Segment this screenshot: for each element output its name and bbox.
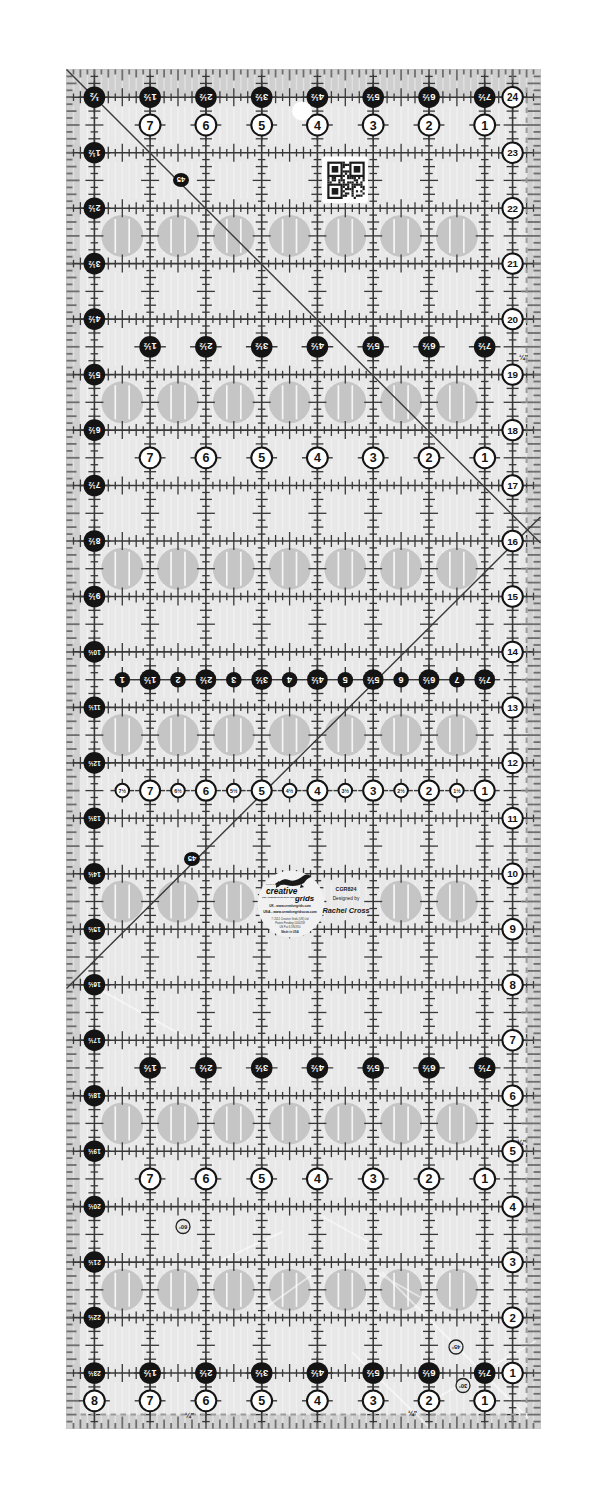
svg-text:4: 4 <box>314 119 321 133</box>
svg-text:6½: 6½ <box>422 675 435 685</box>
svg-text:2½: 2½ <box>88 203 100 213</box>
svg-text:7: 7 <box>147 1172 154 1186</box>
svg-text:4: 4 <box>314 1394 321 1408</box>
svg-text:7: 7 <box>147 119 154 133</box>
svg-text:8: 8 <box>509 979 516 991</box>
svg-text:2: 2 <box>175 675 180 685</box>
svg-text:2: 2 <box>426 451 433 465</box>
svg-text:6: 6 <box>203 785 209 797</box>
svg-text:2: 2 <box>426 1172 433 1186</box>
svg-text:45: 45 <box>177 175 185 184</box>
svg-text:4: 4 <box>509 1201 516 1213</box>
svg-text:18½: 18½ <box>88 1092 101 1099</box>
svg-text:5½: 5½ <box>367 1063 380 1074</box>
svg-text:23½: 23½ <box>87 1370 100 1377</box>
svg-text:45°: 45° <box>452 1344 460 1350</box>
svg-text:11: 11 <box>507 813 518 824</box>
svg-text:24: 24 <box>507 92 519 103</box>
svg-text:7: 7 <box>454 675 459 685</box>
svg-text:2½: 2½ <box>397 788 405 794</box>
svg-text:4½: 4½ <box>311 675 324 685</box>
svg-text:4: 4 <box>314 451 321 465</box>
svg-text:6½: 6½ <box>422 92 435 103</box>
svg-text:12½: 12½ <box>88 760 101 767</box>
svg-text:9: 9 <box>509 923 515 935</box>
svg-text:7½: 7½ <box>478 92 491 103</box>
svg-text:19½: 19½ <box>88 1148 101 1155</box>
svg-text:6: 6 <box>399 675 404 685</box>
svg-text:4½: 4½ <box>286 788 294 794</box>
svg-text:7: 7 <box>147 1394 154 1408</box>
svg-text:2½: 2½ <box>199 1368 212 1379</box>
svg-text:Rachel Cross: Rachel Cross <box>322 906 369 915</box>
svg-text:11½: 11½ <box>88 704 101 711</box>
svg-text:16: 16 <box>507 536 518 547</box>
svg-text:6½: 6½ <box>88 425 100 435</box>
svg-text:5½: 5½ <box>88 370 100 380</box>
svg-text:8½: 8½ <box>88 536 100 546</box>
svg-text:7½: 7½ <box>478 341 491 352</box>
svg-text:21: 21 <box>507 258 518 269</box>
svg-text:5½: 5½ <box>367 341 380 352</box>
svg-text:The Original NON-SLIP ruler: The Original NON-SLIP ruler <box>262 896 295 899</box>
svg-text:15: 15 <box>507 591 518 602</box>
svg-text:5: 5 <box>258 1394 265 1408</box>
svg-text:1: 1 <box>120 675 125 685</box>
svg-text:4½: 4½ <box>88 314 100 324</box>
svg-text:7½: 7½ <box>478 1368 491 1379</box>
svg-text:19: 19 <box>507 369 518 380</box>
svg-text:3: 3 <box>370 451 377 465</box>
svg-text:22½: 22½ <box>88 1314 101 1321</box>
svg-text:¼": ¼" <box>517 1139 526 1146</box>
svg-text:5: 5 <box>509 1145 516 1157</box>
svg-text:2: 2 <box>426 1394 433 1408</box>
svg-text:7: 7 <box>509 1034 515 1046</box>
svg-text:3: 3 <box>370 119 377 133</box>
svg-text:17: 17 <box>507 480 518 491</box>
svg-text:1: 1 <box>481 119 488 133</box>
svg-text:Patent Pending 1000258: Patent Pending 1000258 <box>275 921 305 925</box>
svg-text:3: 3 <box>370 785 376 797</box>
svg-text:45: 45 <box>188 854 196 863</box>
svg-text:7: 7 <box>147 451 154 465</box>
svg-text:6: 6 <box>202 1172 209 1186</box>
svg-text:3½: 3½ <box>255 1368 268 1379</box>
svg-text:9½: 9½ <box>88 591 100 601</box>
svg-text:2½: 2½ <box>199 1063 212 1074</box>
svg-text:5½: 5½ <box>367 92 380 103</box>
svg-text:1½: 1½ <box>88 148 100 158</box>
svg-text:¼": ¼" <box>519 354 528 361</box>
svg-text:¼": ¼" <box>185 1412 194 1419</box>
svg-text:Designed by: Designed by <box>333 896 360 901</box>
svg-text:CGR824: CGR824 <box>336 886 357 892</box>
svg-text:4½: 4½ <box>311 1063 324 1074</box>
svg-text:13½: 13½ <box>88 815 101 822</box>
svg-text:grids: grids <box>294 894 315 903</box>
svg-text:2: 2 <box>509 1312 515 1324</box>
svg-text:6½: 6½ <box>174 788 182 794</box>
svg-text:6: 6 <box>202 1394 209 1408</box>
svg-text:1½: 1½ <box>453 788 461 794</box>
svg-text:5: 5 <box>258 1172 265 1186</box>
svg-text:20½: 20½ <box>88 1203 101 1210</box>
svg-text:20: 20 <box>507 314 518 325</box>
svg-text:3: 3 <box>509 1256 515 1268</box>
svg-text:1: 1 <box>509 1367 516 1379</box>
svg-text:23: 23 <box>507 147 518 158</box>
svg-text:¼": ¼" <box>408 1410 417 1417</box>
svg-text:7: 7 <box>147 785 153 797</box>
svg-text:3½: 3½ <box>88 259 100 269</box>
svg-text:5: 5 <box>343 675 348 685</box>
svg-text:5½: 5½ <box>230 788 238 794</box>
svg-text:1: 1 <box>481 451 488 465</box>
svg-text:3: 3 <box>370 1172 377 1186</box>
svg-text:UK - www.creativegrids.com: UK - www.creativegrids.com <box>269 904 311 908</box>
svg-text:3½: 3½ <box>342 788 350 794</box>
svg-text:7½: 7½ <box>119 788 127 794</box>
svg-text:5½: 5½ <box>366 675 379 685</box>
svg-text:5: 5 <box>258 451 265 465</box>
svg-text:60°: 60° <box>179 1224 187 1230</box>
svg-text:6½: 6½ <box>422 1368 435 1379</box>
svg-text:4½: 4½ <box>311 92 324 103</box>
svg-text:4: 4 <box>314 785 321 797</box>
svg-text:22: 22 <box>507 203 518 214</box>
svg-text:© 2011 Creative Grids (UK) Ltd: © 2011 Creative Grids (UK) Ltd <box>271 917 309 921</box>
svg-text:½: ½ <box>89 91 99 103</box>
svg-text:3½: 3½ <box>255 341 268 352</box>
svg-text:4½: 4½ <box>311 341 324 352</box>
svg-text:6: 6 <box>202 451 209 465</box>
svg-text:US Pat 6,594,910: US Pat 6,594,910 <box>279 925 301 929</box>
svg-text:USA - www.creativegridsusa.com: USA - www.creativegridsusa.com <box>263 910 317 914</box>
svg-text:5½: 5½ <box>367 1368 380 1379</box>
svg-text:2½: 2½ <box>199 341 212 352</box>
svg-text:1: 1 <box>481 785 488 797</box>
svg-text:7½: 7½ <box>88 480 100 490</box>
svg-text:14½: 14½ <box>88 871 101 878</box>
svg-text:1: 1 <box>481 1394 488 1408</box>
svg-text:4½: 4½ <box>311 1368 324 1379</box>
svg-text:6½: 6½ <box>422 341 435 352</box>
svg-text:4: 4 <box>314 1172 321 1186</box>
svg-text:18: 18 <box>507 425 518 436</box>
svg-text:6: 6 <box>202 119 209 133</box>
svg-text:7½: 7½ <box>478 1063 491 1074</box>
svg-text:5: 5 <box>258 119 265 133</box>
svg-text:3½: 3½ <box>255 1063 268 1074</box>
svg-text:3½: 3½ <box>255 675 268 685</box>
svg-text:3½: 3½ <box>255 92 268 103</box>
svg-text:creative: creative <box>266 886 298 896</box>
svg-text:5: 5 <box>258 785 265 797</box>
svg-text:3: 3 <box>370 1394 377 1408</box>
svg-text:Made in USA: Made in USA <box>281 930 300 934</box>
svg-text:13: 13 <box>507 702 518 713</box>
svg-text:2½: 2½ <box>199 675 212 685</box>
svg-text:10½: 10½ <box>88 649 101 656</box>
svg-text:1½: 1½ <box>143 675 156 685</box>
svg-text:21½: 21½ <box>88 1259 101 1266</box>
svg-text:1½: 1½ <box>143 341 156 352</box>
svg-text:6: 6 <box>509 1090 515 1102</box>
svg-text:10: 10 <box>507 868 518 879</box>
svg-text:2½: 2½ <box>199 92 212 103</box>
svg-text:4: 4 <box>287 675 292 685</box>
svg-text:12: 12 <box>507 757 518 768</box>
svg-text:2: 2 <box>426 785 432 797</box>
svg-text:14: 14 <box>507 646 518 657</box>
svg-text:3: 3 <box>231 675 236 685</box>
svg-text:7½: 7½ <box>478 675 491 685</box>
svg-text:6½: 6½ <box>422 1063 435 1074</box>
svg-text:2: 2 <box>426 119 433 133</box>
svg-text:1½: 1½ <box>143 92 156 103</box>
svg-text:1½: 1½ <box>143 1063 156 1074</box>
svg-text:1½: 1½ <box>143 1368 156 1379</box>
svg-text:30°: 30° <box>459 1383 467 1389</box>
svg-text:8: 8 <box>91 1394 98 1408</box>
svg-text:17½: 17½ <box>88 1037 101 1044</box>
svg-text:1: 1 <box>481 1172 488 1186</box>
svg-text:15½: 15½ <box>88 926 101 933</box>
svg-text:16½: 16½ <box>88 981 101 988</box>
